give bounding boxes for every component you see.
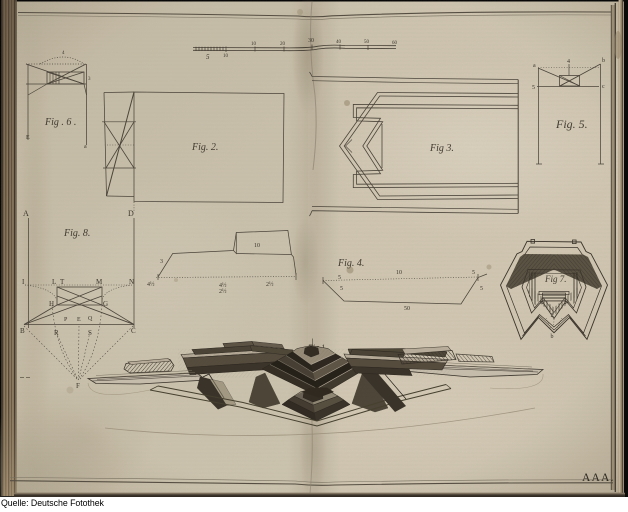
svg-text:60: 60 — [392, 41, 398, 46]
svg-text:E: E — [26, 135, 30, 141]
svg-text:Fig 3.: Fig 3. — [429, 143, 454, 154]
svg-text:5: 5 — [472, 270, 475, 276]
svg-text:b: b — [551, 334, 554, 340]
svg-text:50: 50 — [404, 306, 410, 312]
svg-text:3: 3 — [160, 259, 163, 265]
svg-text:4: 4 — [567, 59, 570, 65]
svg-text:B: B — [20, 327, 25, 335]
svg-text:5: 5 — [340, 286, 343, 292]
svg-text:R: R — [54, 329, 59, 337]
svg-text:5: 5 — [532, 85, 535, 91]
svg-text:10: 10 — [223, 54, 229, 59]
svg-text:5: 5 — [206, 53, 210, 61]
svg-text:M: M — [96, 278, 103, 286]
svg-text:a: a — [533, 63, 536, 69]
svg-text:10: 10 — [254, 243, 260, 249]
svg-text:A: A — [23, 209, 29, 218]
svg-text:S: S — [88, 329, 92, 337]
svg-text:2½: 2½ — [266, 281, 274, 288]
svg-text:E: E — [77, 317, 81, 323]
svg-text:40: 40 — [336, 40, 342, 45]
svg-text:AAA.: AAA. — [582, 472, 615, 484]
svg-text:Q: Q — [88, 316, 93, 322]
svg-text:Z: Z — [551, 313, 555, 319]
svg-text:F: F — [76, 382, 80, 390]
svg-text:5: 5 — [338, 275, 341, 281]
svg-text:b: b — [602, 58, 605, 64]
svg-text:Fig. 8.: Fig. 8. — [63, 228, 90, 239]
svg-text:N: N — [129, 278, 134, 286]
svg-text:Fig . 6 .: Fig . 6 . — [44, 117, 76, 128]
svg-text:Fig. 5.: Fig. 5. — [555, 117, 588, 131]
svg-text:10: 10 — [396, 270, 402, 276]
svg-text:2½: 2½ — [219, 288, 227, 295]
svg-text:T: T — [60, 278, 65, 286]
svg-text:30: 30 — [308, 38, 314, 44]
svg-text:C: C — [131, 327, 136, 335]
svg-text:H: H — [49, 300, 54, 308]
svg-text:10: 10 — [251, 42, 257, 47]
svg-text:c: c — [602, 84, 605, 90]
svg-text:Fig. 2.: Fig. 2. — [191, 142, 218, 153]
svg-text:50: 50 — [364, 40, 370, 45]
svg-text:a: a — [84, 144, 87, 150]
svg-text:4½: 4½ — [147, 281, 155, 288]
svg-text:Fig 7.: Fig 7. — [544, 274, 567, 284]
svg-text:L: L — [52, 278, 56, 286]
svg-text:D: D — [128, 209, 134, 218]
svg-text:4½: 4½ — [219, 282, 227, 289]
svg-text:5: 5 — [480, 286, 483, 292]
svg-text:G: G — [103, 300, 108, 308]
svg-text:20: 20 — [280, 42, 286, 47]
